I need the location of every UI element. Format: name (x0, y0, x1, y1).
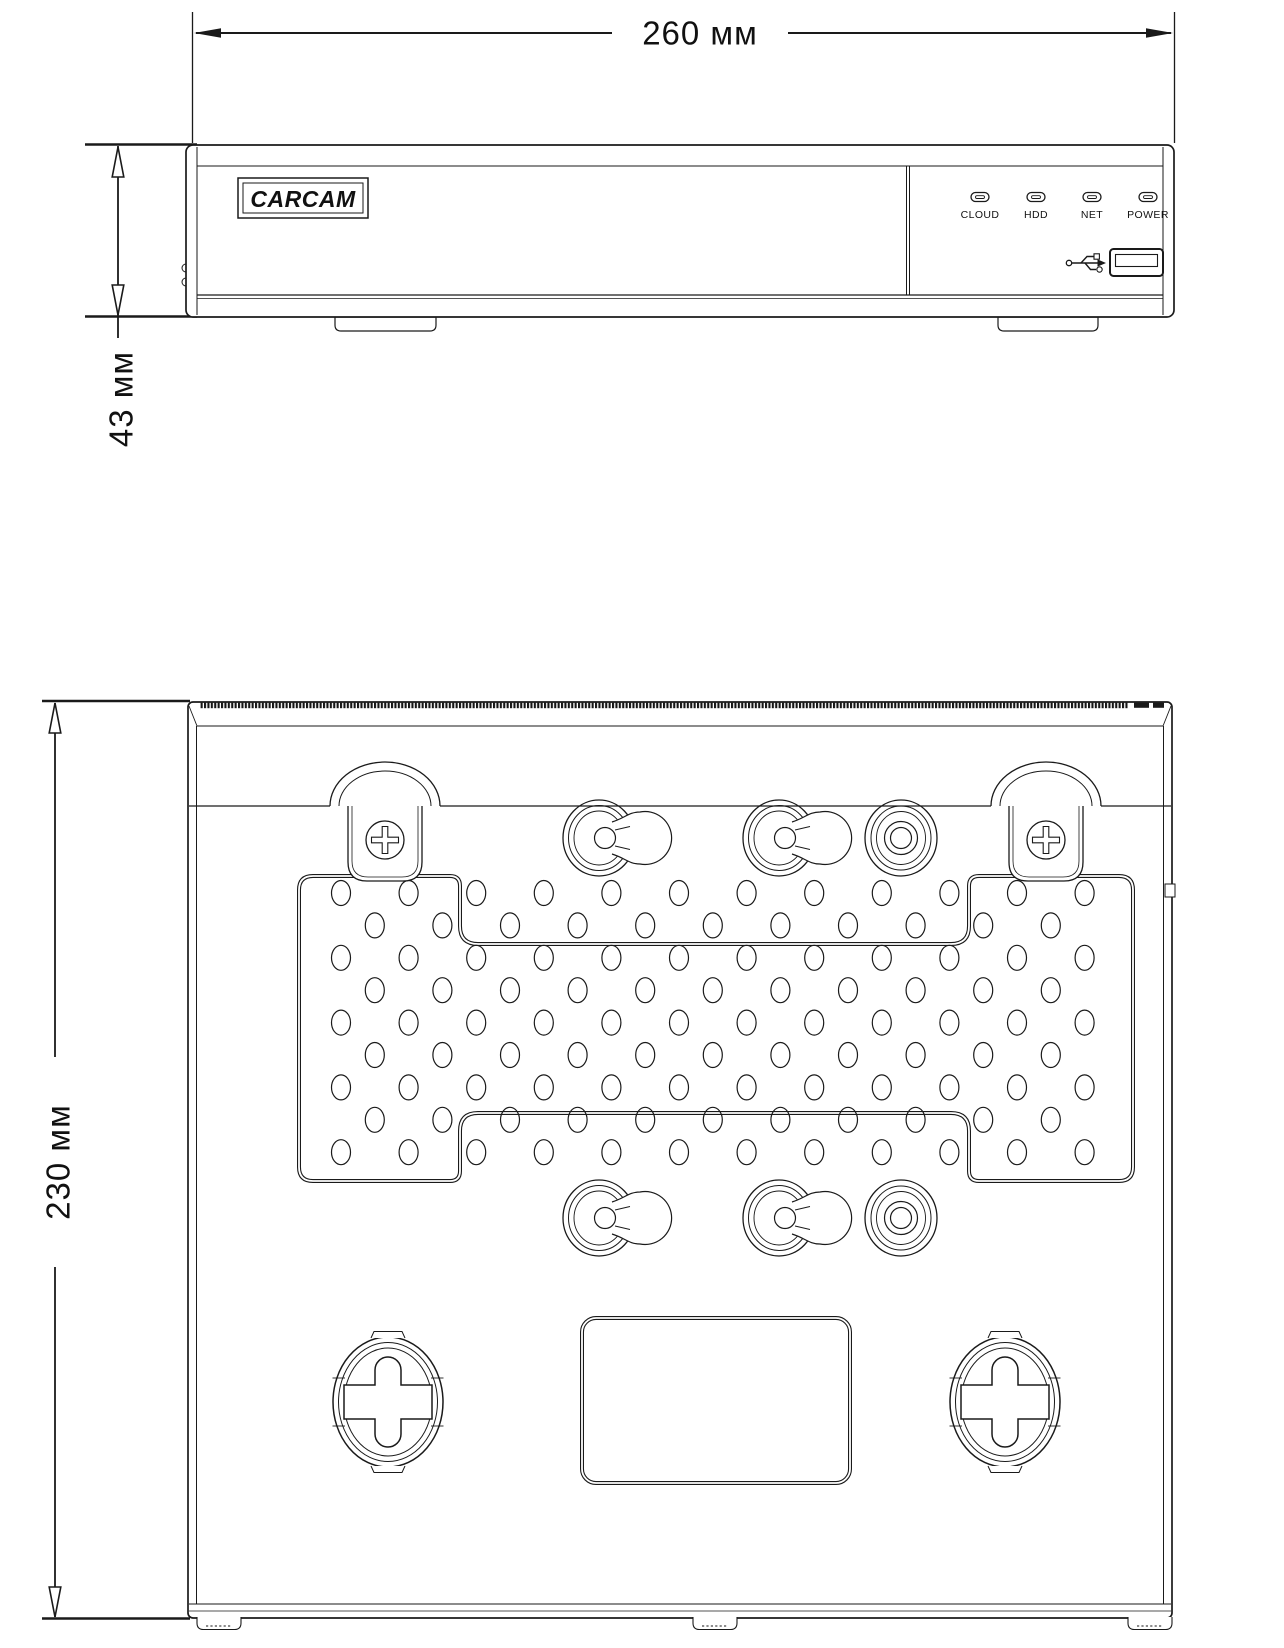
corner-feet (197, 1617, 1172, 1630)
foot-chamfer-top (988, 1332, 1022, 1339)
corner-foot (197, 1617, 241, 1630)
dim-depth-label: 230 мм (40, 1104, 77, 1220)
brand-logo: CARCAM (238, 178, 368, 218)
corner-foot (1128, 1617, 1172, 1630)
corner-foot (693, 1617, 737, 1630)
keyhole-center-hole (595, 1208, 616, 1229)
keyhole-bulb-fill (612, 1192, 672, 1245)
rear-vent-band-segment-1 (1134, 703, 1149, 708)
foot-chamfer-top (371, 1332, 405, 1339)
arrowhead-up (49, 703, 61, 733)
arrowhead-down (112, 285, 124, 315)
cloud-led-label: CLOUD (961, 209, 1000, 221)
keyhole-bulb-fill (792, 1192, 852, 1245)
keyhole-center-hole (595, 828, 616, 849)
front-foot-right (998, 317, 1098, 331)
bottom-view (188, 702, 1175, 1630)
keyhole-center-hole (775, 828, 796, 849)
dim-width-label: 260 мм (642, 15, 758, 52)
dimension-depth: 230 мм (40, 701, 191, 1619)
rear-vent-band-segment-2 (1153, 703, 1164, 708)
usb-port (1110, 249, 1163, 276)
arrowhead-up (112, 147, 124, 177)
foot-chamfer-bottom (988, 1466, 1022, 1473)
keyhole-bulb-fill (792, 812, 852, 865)
front-foot-left (335, 317, 436, 331)
usb-port-outline (1110, 249, 1163, 276)
arrowhead-left (194, 28, 221, 38)
right-edge-notch (1165, 884, 1175, 897)
dim-height-label: 43 мм (103, 351, 140, 447)
dimension-height: 43 мм (85, 145, 197, 448)
logo-text: CARCAM (250, 186, 356, 212)
arrowhead-down (49, 1587, 61, 1617)
arrowhead-right (1146, 28, 1173, 38)
drawing-canvas: 260 мм 43 мм 230 мм C (0, 0, 1284, 1648)
dimension-width: 260 мм (193, 12, 1175, 143)
keyhole-bulb-fill (612, 812, 672, 865)
net-led-label: NET (1081, 209, 1103, 221)
front-body-outline (186, 145, 1174, 317)
rear-vent-band (200, 703, 1128, 709)
hdd-led-label: HDD (1024, 209, 1048, 221)
keyhole-center-hole (775, 1208, 796, 1229)
power-led-label: POWER (1127, 209, 1169, 221)
foot-chamfer-bottom (371, 1466, 405, 1473)
front-view: CARCAM CLOUD HDD NET POWER (182, 145, 1174, 331)
